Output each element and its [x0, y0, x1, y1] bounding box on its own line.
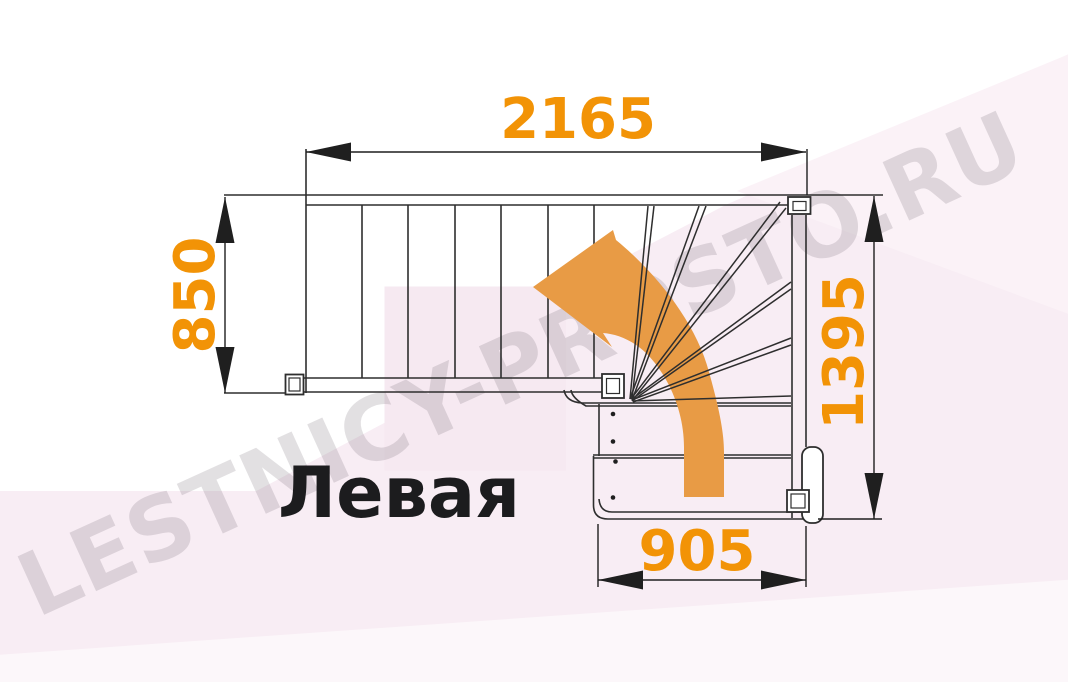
dimension-label-bottom: 905: [639, 524, 756, 580]
dimension-label-right: 1395: [817, 274, 873, 430]
dimension-label-top: 2165: [500, 92, 656, 148]
orientation-label: Левая: [278, 458, 520, 528]
dimension-label-left: 850: [168, 237, 224, 354]
stair-plan-canvas: LESTNICY-PROSTO.RU: [0, 0, 1068, 682]
direction-arrow: [533, 230, 724, 497]
